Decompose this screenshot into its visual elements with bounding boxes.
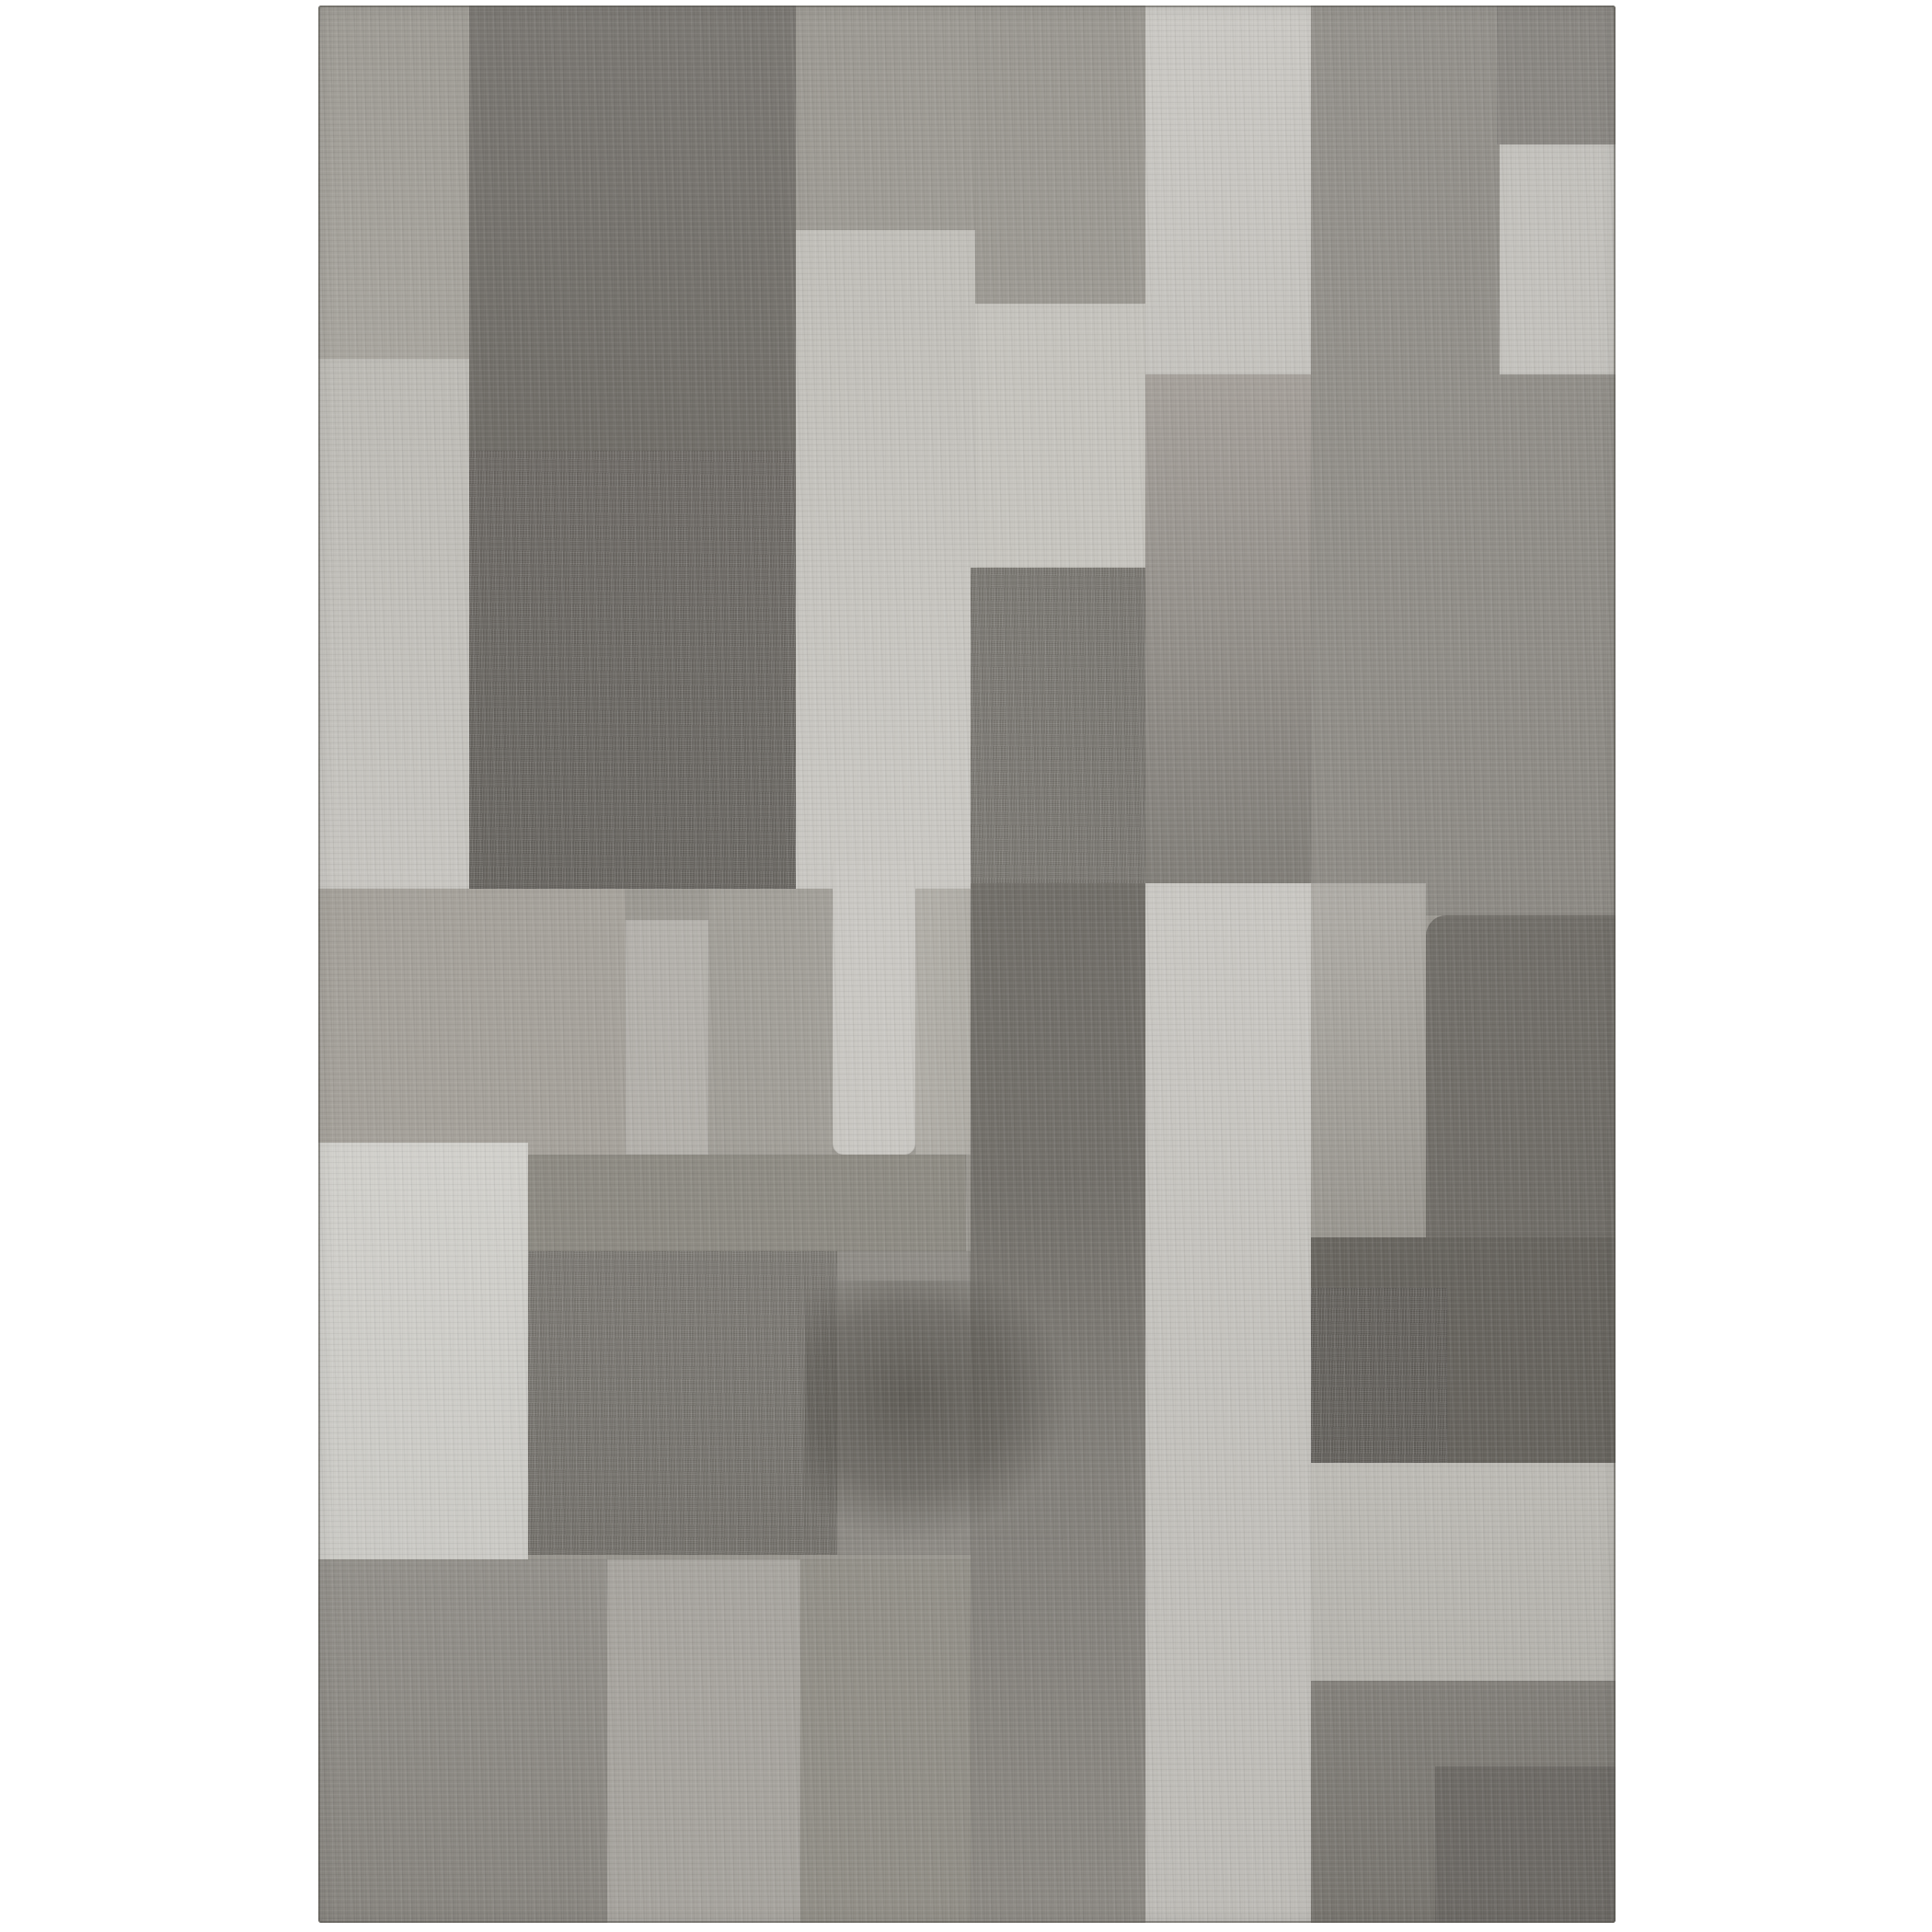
rug-patch-center-dark-square [971, 568, 1145, 883]
rug-patch-dark-column-lower [469, 451, 796, 889]
rug-patch-lower-left-bright-patch [318, 1143, 528, 1559]
rug-patch-row2-medium [708, 889, 833, 1155]
rug-product-photo [318, 6, 1616, 1923]
rug-patch-mid-column-silver [796, 230, 975, 889]
rug-patch-left-column-top [318, 6, 478, 368]
rug-patch-row2-medium-right [915, 889, 971, 1155]
rug-patch-right-darkest-square [1311, 1288, 1447, 1463]
rug-patches [318, 6, 1616, 1923]
rug-patch-row2-bright-strip [833, 860, 915, 1155]
rug-patch-mid-dark-patch [528, 1251, 837, 1555]
rug-patch-bright-column-top [1145, 6, 1311, 374]
rug-patch-right-light-patch [1311, 1463, 1616, 1681]
rug-patch-row2-greige [318, 889, 626, 1159]
rug-patch-mid-square-fade [1145, 374, 1311, 883]
rug-patch-row2-light-strip [626, 920, 708, 1155]
rug-patch-mid-column-top-medium [796, 6, 975, 230]
rug-patch-right-edge-light-rect [1500, 144, 1616, 374]
rug-patch-right-mid-column [1311, 883, 1426, 1237]
rug-patch-bottom-left-medium [318, 1559, 607, 1923]
rug-patch-right-corner-medium-dark [1497, 6, 1616, 144]
rug-patch-top-mid-medium [975, 6, 1145, 304]
rug-patch-right-bottom-dark [1435, 1766, 1616, 1923]
rug-patch-mid-dark-band [528, 1155, 966, 1251]
rug-patch-mid-dark-blob [805, 1281, 1064, 1539]
rug-patch-bottom-center-medium [800, 1559, 971, 1923]
rug-patch-bottom-left-light-column [607, 1559, 800, 1923]
rug-patch-left-column-light [318, 359, 478, 889]
rug-patch-dark-column-upper [469, 6, 796, 451]
rug-patch-bright-column-bottom [1145, 883, 1311, 1923]
page-background [0, 0, 1932, 1932]
rug-patch-top-mid-silver [975, 304, 1145, 568]
